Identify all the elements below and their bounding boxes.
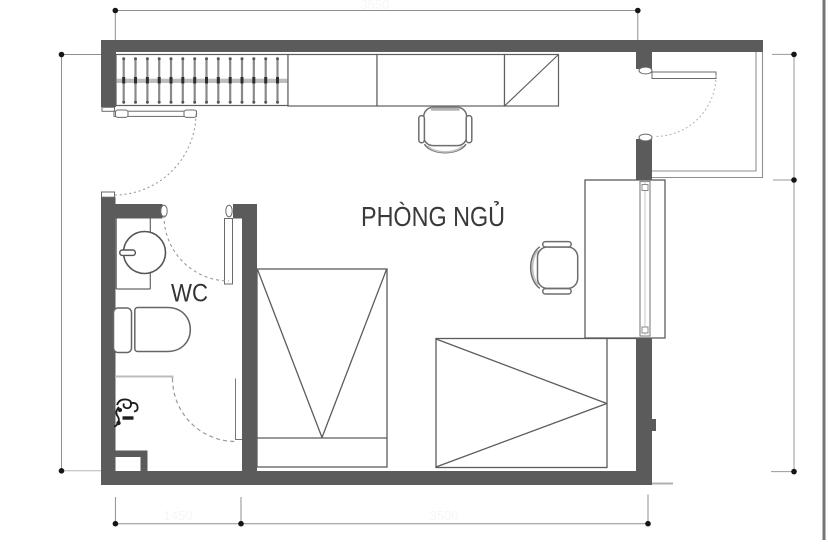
svg-text:1450: 1450 bbox=[164, 508, 193, 523]
svg-text:WC: WC bbox=[171, 280, 208, 308]
svg-text:3500: 3500 bbox=[430, 508, 459, 523]
svg-text:3550: 3550 bbox=[361, 0, 390, 12]
svg-text:PHÒNG NGỦ: PHÒNG NGỦ bbox=[361, 200, 505, 232]
